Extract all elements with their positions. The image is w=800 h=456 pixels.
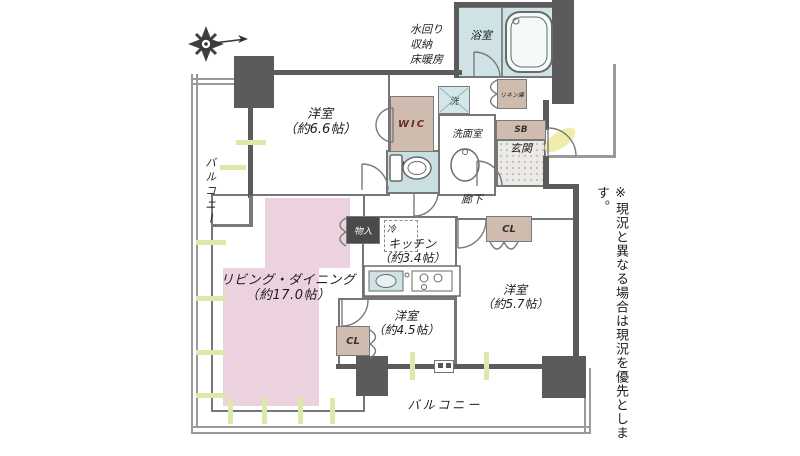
label-bedroom-45: 洋室 （約4.5帖） <box>352 310 460 338</box>
compass-center <box>201 39 211 49</box>
sb-label: SB <box>514 125 527 135</box>
north-arrow-icon <box>214 39 246 43</box>
living-dining-floor <box>265 198 350 268</box>
window-marker <box>410 352 415 380</box>
wall-outlet-box <box>434 360 454 373</box>
compass-diagonals <box>196 34 216 54</box>
disclaimer-note: ※現況と異なる場合は現況を優先とします。 <box>592 186 630 448</box>
window-marker <box>484 352 489 380</box>
compass-star <box>188 26 224 62</box>
shoe-box: SB <box>496 120 546 140</box>
label-hallway: 廊下 <box>440 194 504 207</box>
label-kitchen: キッチン （約3.4帖） <box>366 238 458 266</box>
linen-label: リネン庫 <box>500 90 524 99</box>
balcony-railing <box>191 74 193 432</box>
monoire-label: 物入 <box>354 224 372 237</box>
label-washroom: 洗面室 <box>436 129 498 141</box>
balcony-railing <box>191 432 591 434</box>
room-washroom <box>438 114 496 196</box>
wall <box>573 184 579 368</box>
window-marker <box>220 165 246 170</box>
balcony-railing <box>191 426 591 428</box>
wall <box>248 70 462 75</box>
door-swing-toilet <box>414 192 438 216</box>
structural-column <box>234 56 274 108</box>
compass-dot <box>204 42 208 46</box>
label-bedroom-66: 洋室 （約6.6帖） <box>252 108 388 138</box>
linen-storage: リネン庫 <box>497 79 527 109</box>
common-corridor-line <box>613 64 616 158</box>
structural-column <box>542 356 586 398</box>
cl-label: CL <box>502 224 516 235</box>
door-swing-entrance <box>548 128 576 156</box>
label-toilet: トイレ <box>388 161 438 173</box>
common-corridor-line <box>549 155 616 158</box>
window-marker <box>330 398 335 424</box>
label-entrance: 玄関 <box>498 143 544 156</box>
wall <box>211 224 253 227</box>
window-marker <box>196 350 226 355</box>
equipment-note: 水回り 収納 床暖房 <box>410 22 472 67</box>
label-living-dining: リビング・ダイニング （約17.0帖） <box>202 274 374 304</box>
window-marker <box>228 398 233 424</box>
wic-label: WIC <box>398 119 426 130</box>
window-marker <box>236 140 266 145</box>
floor-plan: WIC SB CL CL リネン庫 物入 洗 冷 洋室 （約6.6帖） リビング… <box>0 0 800 456</box>
label-balcony-bottom: バルコニー <box>382 399 508 413</box>
walk-in-closet: WIC <box>390 96 434 152</box>
wall <box>249 196 253 226</box>
fridge-label: 冷 <box>387 222 396 235</box>
north-arrow-head <box>238 35 248 43</box>
window-marker <box>298 398 303 424</box>
label-balcony-left: バルコニー <box>203 136 216 248</box>
balcony-railing <box>589 368 591 432</box>
window-marker <box>262 398 267 424</box>
laundry-label: 洗 <box>449 94 458 107</box>
structural-column <box>356 356 388 396</box>
wall <box>454 2 556 7</box>
closet-bedroom-57: CL <box>486 216 532 242</box>
window-marker <box>196 393 226 398</box>
structural-column <box>552 0 574 104</box>
laundry-space: 洗 <box>438 86 470 114</box>
balcony-railing <box>196 74 198 426</box>
label-bedroom-57: 洋室 （約5.7帖） <box>457 284 573 312</box>
